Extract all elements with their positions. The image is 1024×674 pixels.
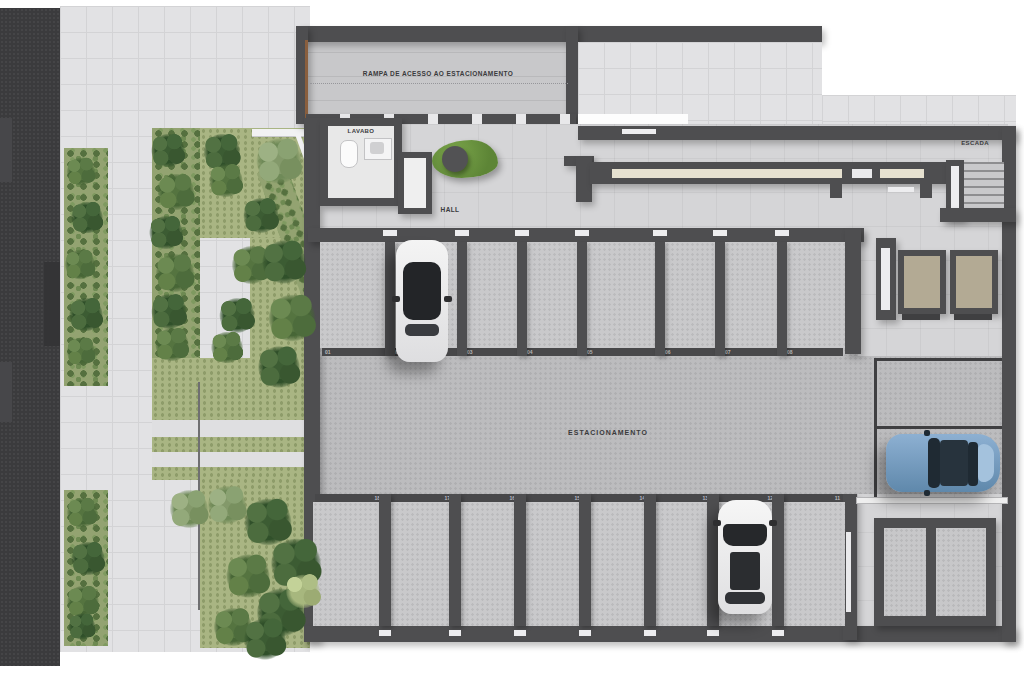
stall-number: 01 xyxy=(325,349,331,355)
parking-stall-04 xyxy=(522,242,582,348)
stall-number: 11 xyxy=(835,495,840,501)
stall-number: 05 xyxy=(587,349,593,355)
garden-path xyxy=(152,420,310,437)
wall-slot xyxy=(379,630,391,636)
parking-stall-marking xyxy=(874,426,1002,429)
car-white-top xyxy=(396,240,448,362)
parking-stall-08 xyxy=(782,242,845,348)
wall-slot xyxy=(775,230,789,236)
car-windshield xyxy=(928,438,940,488)
parking-stall-14 xyxy=(585,502,650,626)
plant-cluster xyxy=(152,326,192,363)
car-glass xyxy=(403,262,441,320)
side-table xyxy=(442,146,468,172)
plant-cluster xyxy=(282,572,324,611)
car-windshield xyxy=(723,524,767,546)
storage-cell xyxy=(884,528,926,616)
plant-cluster xyxy=(240,616,290,662)
parking-stall-05 xyxy=(582,242,660,348)
parking-stall-01 xyxy=(320,242,390,348)
ramp-slope-line xyxy=(310,83,568,84)
plant-cluster xyxy=(64,336,98,367)
stall-line: 03 xyxy=(464,348,520,356)
car-hood xyxy=(978,444,994,482)
car-white-bottom xyxy=(718,500,772,614)
wall-slot xyxy=(514,630,526,636)
stall-divider-wall xyxy=(655,242,665,356)
car-rear-glass xyxy=(968,442,978,486)
car-mirror xyxy=(713,520,721,526)
wall-slot xyxy=(653,230,667,236)
stall-line: 05 xyxy=(584,348,658,356)
plant-cluster xyxy=(68,200,106,235)
plant-cluster xyxy=(64,496,100,529)
stall-line: 06 xyxy=(662,348,718,356)
wood-trim xyxy=(305,40,308,120)
elevator-1 xyxy=(898,250,946,314)
stall-divider-wall xyxy=(517,242,527,356)
plant-cluster xyxy=(240,196,282,235)
wall-slot xyxy=(713,230,727,236)
lavabo-floor xyxy=(328,126,394,198)
stall-divider-wall xyxy=(457,242,467,356)
wall-slot xyxy=(575,230,589,236)
street-patch xyxy=(0,362,12,422)
plant-cluster xyxy=(66,296,106,333)
stair-window xyxy=(951,166,959,212)
stall-line: 18 xyxy=(315,494,383,502)
plant-cluster xyxy=(154,172,198,212)
stair-landing-wall xyxy=(940,208,1016,222)
building-wall-right xyxy=(1002,126,1016,642)
stall-line: 15 xyxy=(522,494,583,502)
car-rear-glass xyxy=(725,592,765,604)
louver-inset xyxy=(880,169,924,178)
upper-pavement-right xyxy=(822,95,1016,126)
wall-slot xyxy=(846,532,851,612)
wall-slot xyxy=(515,230,529,236)
stall-line: 13 xyxy=(652,494,711,502)
stall-line: 11 xyxy=(780,494,843,502)
hall-label: HALL xyxy=(420,206,480,213)
parking-stall-03 xyxy=(462,242,522,348)
building-wall-bottom xyxy=(304,626,1016,642)
ramp-wall-top xyxy=(300,26,822,42)
stall-number: 04 xyxy=(527,349,533,355)
plant-cluster xyxy=(258,238,310,286)
plant-cluster xyxy=(64,156,98,187)
plant-cluster xyxy=(148,132,188,169)
beam-stub xyxy=(920,184,932,198)
car-mirror xyxy=(924,490,930,496)
car-roof-glass xyxy=(940,440,968,486)
wall-top-row-right xyxy=(845,228,861,354)
stall-line: 04 xyxy=(524,348,580,356)
lavabo-label: LAVABO xyxy=(320,128,402,134)
parking-stall-marking xyxy=(874,358,1002,361)
beam-stub xyxy=(830,184,842,198)
louver-inset xyxy=(852,169,872,178)
plant-cluster xyxy=(216,296,258,335)
stall-divider-wall xyxy=(379,494,391,626)
plant-cluster xyxy=(152,252,198,294)
stall-line: 14 xyxy=(587,494,648,502)
stall-number: 07 xyxy=(725,349,731,355)
car-sunroof xyxy=(730,552,760,590)
parking-stall-17 xyxy=(385,502,455,626)
lobby-door-slot xyxy=(881,248,890,310)
estacionamento-label: ESTACIONAMENTO xyxy=(308,429,908,436)
stall-line: 17 xyxy=(387,494,453,502)
elevator-2 xyxy=(950,250,998,314)
closet-floor xyxy=(404,158,426,208)
plant-cluster xyxy=(66,612,98,641)
car-rear-glass xyxy=(405,324,439,336)
toilet xyxy=(340,140,358,168)
floor-plan-canvas: RAMPA DE ACESSO AO ESTACIONAMENTO ESTACI… xyxy=(0,0,1024,674)
escada-label: ESCADA xyxy=(940,140,1010,146)
wall-slot xyxy=(622,129,656,134)
wall-slot xyxy=(707,630,719,636)
stall-divider-wall xyxy=(514,494,526,626)
parking-stall-15 xyxy=(520,502,585,626)
ramp-label: RAMPA DE ACESSO AO ESTACIONAMENTO xyxy=(298,70,578,77)
car-mirror xyxy=(769,520,777,526)
car-blue xyxy=(886,434,1000,492)
stall-divider-wall xyxy=(449,494,461,626)
stall-divider-wall xyxy=(715,242,725,356)
stall-divider-wall xyxy=(644,494,656,626)
street-patch xyxy=(0,118,12,182)
sink-basin xyxy=(370,142,384,154)
plant-cluster xyxy=(68,540,108,577)
elevator-door-sill xyxy=(902,314,940,320)
stall-line: 07 xyxy=(722,348,780,356)
floor-pipe xyxy=(856,497,1008,504)
stall-number: 03 xyxy=(467,349,473,355)
stall-line: 16 xyxy=(457,494,518,502)
wall-slot xyxy=(449,630,461,636)
car-mirror xyxy=(392,296,400,302)
garden-path xyxy=(152,452,310,467)
car-mirror xyxy=(444,296,452,302)
stall-line: 08 xyxy=(784,348,843,356)
plant-cluster xyxy=(264,292,320,344)
plant-cluster xyxy=(146,214,186,251)
stall-divider-wall xyxy=(579,494,591,626)
parking-stall-07 xyxy=(720,242,782,348)
elevator-door-sill xyxy=(954,314,992,320)
plant-cluster xyxy=(208,330,246,365)
parking-stall-11 xyxy=(778,502,845,626)
stall-divider-wall xyxy=(772,494,784,626)
plant-cluster xyxy=(206,162,246,199)
louver-inset xyxy=(612,169,842,178)
storage-cell xyxy=(936,528,986,616)
wall-slot xyxy=(644,630,656,636)
wall-slot xyxy=(579,630,591,636)
wall-slot xyxy=(455,230,469,236)
wall-slot xyxy=(383,230,397,236)
wall-slot xyxy=(888,187,914,192)
parking-stall-13 xyxy=(650,502,713,626)
wall-slot xyxy=(772,630,784,636)
plant-cluster xyxy=(254,344,304,390)
plant-cluster xyxy=(62,248,98,281)
car-mirror xyxy=(924,430,930,436)
stall-divider-wall xyxy=(777,242,787,356)
parking-stall-16 xyxy=(455,502,520,626)
street-patch xyxy=(44,262,60,346)
stall-line: 01 xyxy=(322,348,388,356)
stall-number: 06 xyxy=(665,349,671,355)
parking-stall-marking xyxy=(874,358,877,498)
plant-cluster xyxy=(252,136,306,186)
stall-number: 08 xyxy=(787,349,793,355)
stall-divider-wall xyxy=(577,242,587,356)
parking-stall-06 xyxy=(660,242,720,348)
plant-cluster xyxy=(166,488,212,530)
